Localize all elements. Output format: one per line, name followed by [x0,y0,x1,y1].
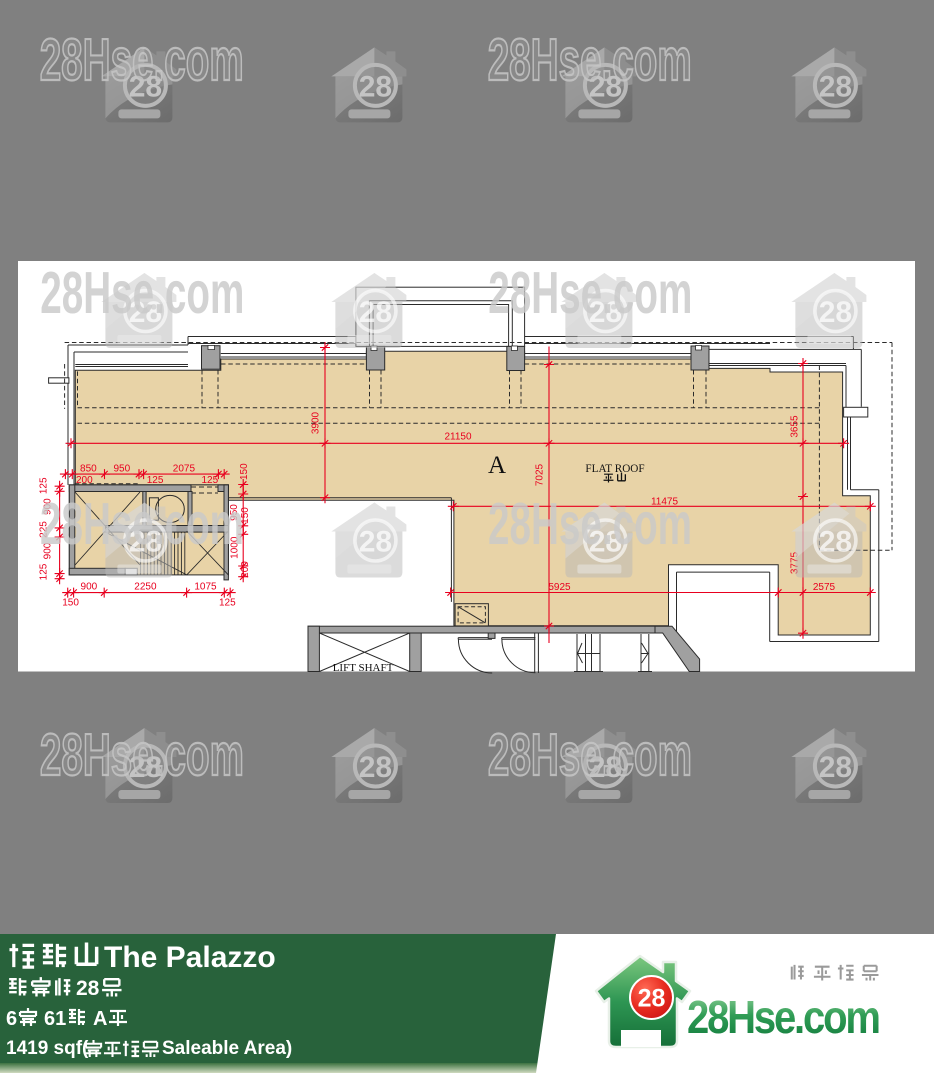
svg-text:Saleable Area): Saleable Area) [162,1038,292,1059]
svg-text:150: 150 [62,598,79,609]
svg-text:A: A [93,1008,107,1030]
svg-text:950: 950 [113,464,130,475]
svg-text:125: 125 [219,598,236,609]
svg-text:28Hse.com: 28Hse.com [687,992,879,1043]
svg-text:125: 125 [147,475,164,486]
svg-text:6: 6 [6,1008,17,1030]
svg-text:200: 200 [76,475,93,486]
svg-text:2075: 2075 [173,464,196,475]
svg-text:28: 28 [638,985,666,1013]
svg-text:21150: 21150 [444,432,472,443]
svg-text:150: 150 [239,463,250,480]
svg-text:The Palazzo: The Palazzo [104,941,276,974]
svg-text:5925: 5925 [548,582,571,593]
svg-text:28: 28 [76,977,100,1000]
svg-text:2250: 2250 [134,581,157,592]
svg-text:1075: 1075 [194,581,217,592]
svg-text:A: A [488,452,506,479]
svg-text:125: 125 [39,563,50,580]
svg-text:900: 900 [81,581,98,592]
svg-text:200: 200 [240,561,251,578]
svg-text:LIFT SHAFT: LIFT SHAFT [333,662,394,674]
svg-text:3900: 3900 [311,411,322,434]
svg-text:FLAT ROOF: FLAT ROOF [585,463,644,475]
svg-text:2575: 2575 [813,582,836,593]
svg-text:850: 850 [80,464,97,475]
svg-text:7025: 7025 [535,463,546,486]
svg-text:125: 125 [201,475,218,486]
svg-text:1419 sqf(: 1419 sqf( [6,1038,89,1059]
svg-text:3655: 3655 [790,415,801,438]
svg-text:61: 61 [44,1008,66,1030]
